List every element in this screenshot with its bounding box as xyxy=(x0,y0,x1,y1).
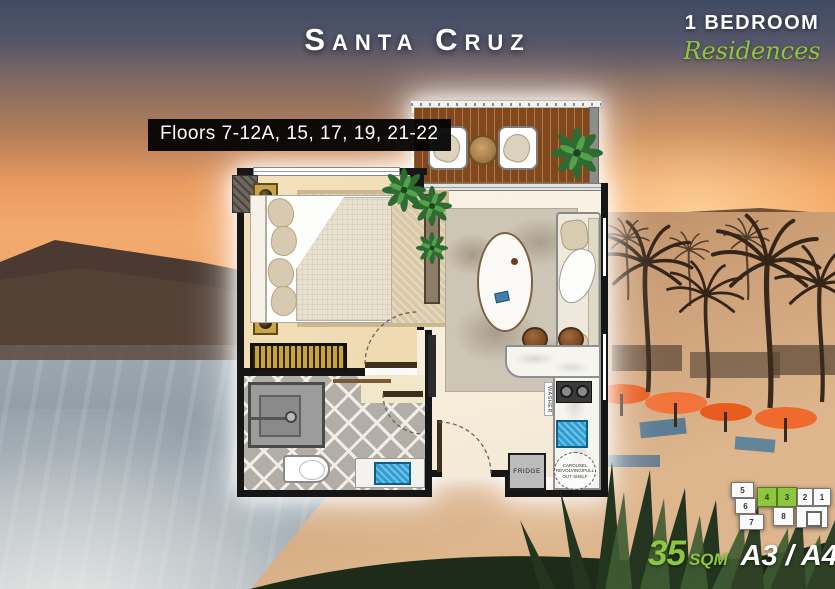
area-value: 35 xyxy=(648,534,685,574)
unit-type-badge: 1 BEDROOM Residences xyxy=(677,12,827,65)
key-plan-unit-3-highlighted: 3 xyxy=(777,487,797,507)
key-plan-unit-7: 7 xyxy=(739,514,764,530)
unit-summary: 35 SQM A3 / A4 xyxy=(648,534,830,574)
area-label: 35 SQM xyxy=(648,534,728,574)
key-plan-unit-8: 8 xyxy=(773,507,794,526)
badge-bedroom-count: 1 BEDROOM xyxy=(677,12,827,35)
key-plan-unit-6: 6 xyxy=(735,498,756,514)
key-plan-unit-4-highlighted: 4 xyxy=(757,487,777,507)
floor-plan: WASHER FRIDGE CAROUSEL REVOLVING/PULL OU… xyxy=(232,98,612,518)
floors-label: Floors 7-12A, 15, 17, 19, 21-22 xyxy=(148,119,451,151)
marketing-poster: Santa Cruz 1 BEDROOM Residences Floors 7… xyxy=(0,0,835,589)
key-plan-unit-2: 2 xyxy=(797,488,813,506)
key-plan-elevator-core xyxy=(796,506,828,528)
key-plan-unit-5: 5 xyxy=(731,482,754,498)
unit-codes: A3 / A4 xyxy=(741,540,835,573)
badge-residences: Residences xyxy=(677,37,827,65)
key-plan-unit-1: 1 xyxy=(813,488,831,506)
area-unit: SQM xyxy=(689,550,728,570)
plan-overlay xyxy=(232,98,612,518)
